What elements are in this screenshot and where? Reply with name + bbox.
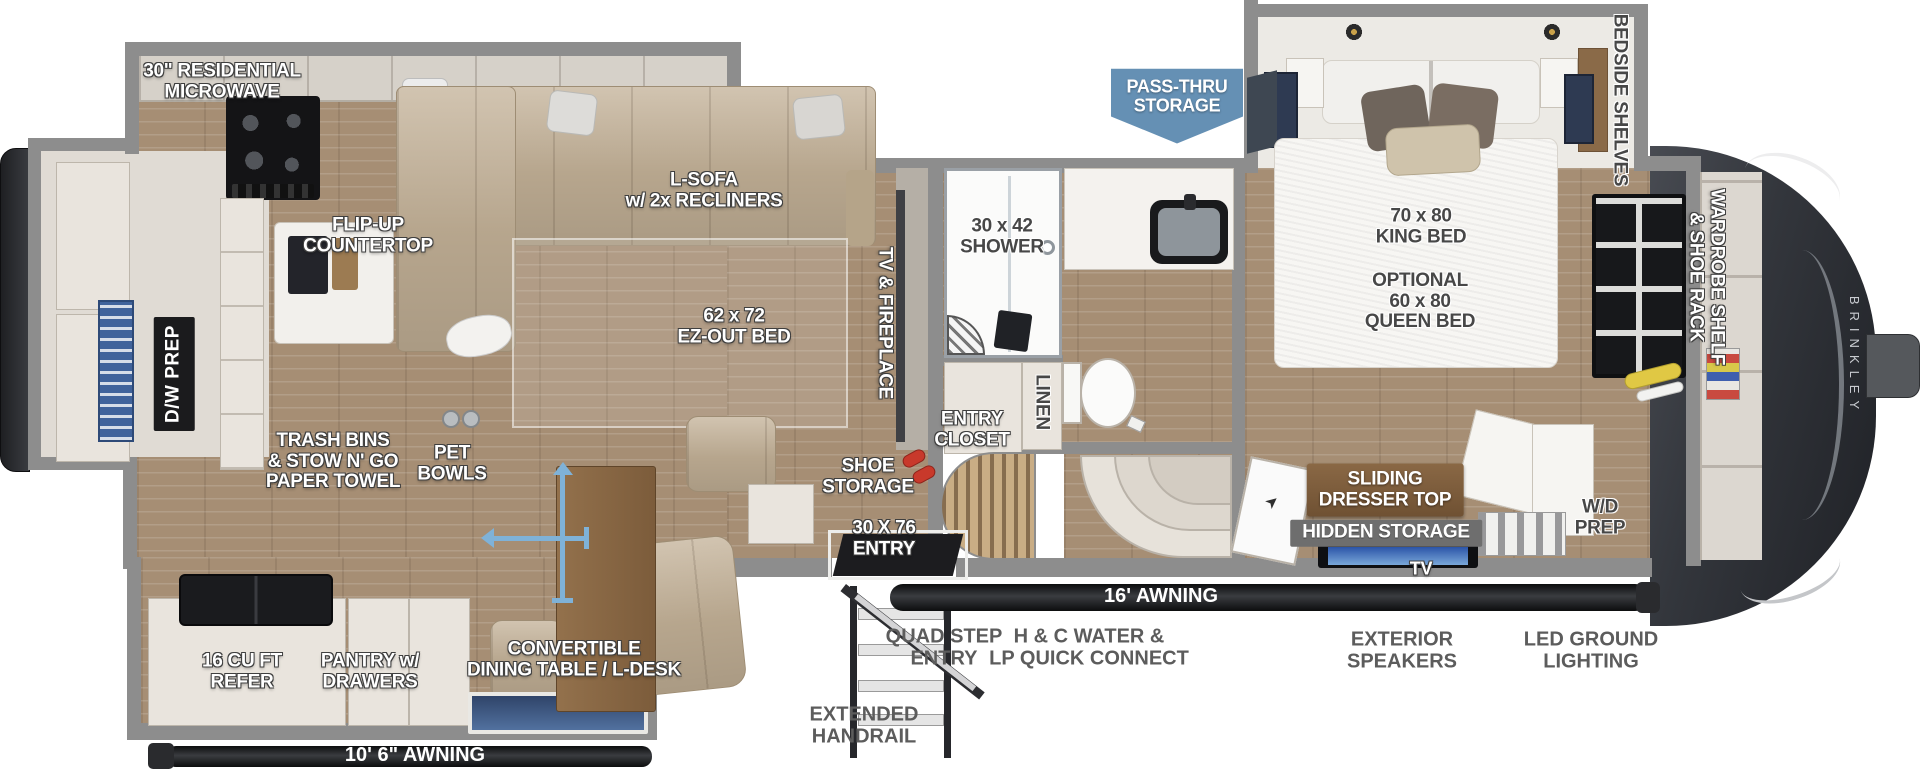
trash-bins-label: TRASH BINS & STOW N' GO PAPER TOWEL (266, 431, 400, 493)
wd-prep-label: W/D PREP (1575, 497, 1626, 538)
front-cap-curve (1760, 250, 1844, 520)
entry-closet-label: ENTRY CLOSET (934, 409, 1009, 450)
slide-end-window (1564, 74, 1594, 144)
hc-water-label: H & C WATER & LP QUICK CONNECT (989, 626, 1189, 669)
bed-slide-top-wall (1256, 4, 1648, 17)
hidden-storage-sign: HIDDEN STORAGE (1290, 520, 1482, 547)
tv-label: TV (1410, 559, 1432, 578)
bath-sink-basin (1158, 208, 1220, 256)
floor-plan-canvas: ➤ 30" RESIDENTIAL MICROWAVE FLIP-UP COUN… (0, 0, 1920, 771)
pantry-label: PANTRY w/ DRAWERS (321, 651, 419, 692)
flip-up-countertop-label: FLIP-UP COUNTERTOP (303, 215, 433, 256)
pass-thru-door (1247, 70, 1277, 153)
table-move-arrow-cap-bottom (552, 598, 573, 603)
sofa-pillow (546, 89, 599, 137)
shower-control (994, 310, 1033, 352)
camp-side-awning-end-cap (148, 743, 174, 769)
bedside-shelves-label: BEDSIDE SHELVES (1609, 14, 1630, 187)
door-side-awning-label: 16' AWNING (1104, 586, 1218, 608)
stove-grate (232, 184, 314, 198)
bedroom-window (1592, 194, 1686, 378)
pass-thru-storage-badge: PASS-THRU STORAGE (1111, 69, 1243, 144)
recliner-chair (686, 416, 776, 492)
dinette-label: CONVERTIBLE DINING TABLE / L-DESK (467, 639, 681, 680)
bed-slide-right-wall (1634, 4, 1648, 160)
pet-bowls-label: PET BOWLS (417, 443, 486, 484)
toilet-tank (1062, 362, 1082, 424)
ez-out-bed-label: 62 x 72 EZ-OUT BED (677, 306, 790, 347)
table-move-arrow-cap-right (584, 527, 589, 549)
extended-handrail-label: EXTENDED HANDRAIL (810, 704, 919, 747)
table-move-arrow-up (553, 462, 573, 475)
brand-wordmark: BRINKLEY (1847, 296, 1861, 416)
wardrobe-shelf-label: WARDROBE SHELF & SHOE RACK (1685, 189, 1726, 365)
rear-cabinet-upper (56, 162, 130, 310)
tv-fireplace-label: TV & FIREPLACE (874, 247, 895, 399)
refer-label: 16 CU FT REFER (202, 651, 282, 692)
rear-top-wall (30, 138, 130, 151)
shoe-storage-bench (748, 484, 814, 544)
hitch-pin-box (1866, 334, 1920, 398)
pet-bowl-icon (442, 410, 460, 428)
entry-step (858, 680, 944, 692)
bed-pillow-accent (1385, 124, 1481, 177)
bedroom-tv-screen (1328, 547, 1468, 565)
bottom-wall-right-of-door (956, 558, 1652, 577)
rear-left-wall (28, 138, 41, 470)
tv-panel (896, 190, 905, 442)
dw-prep-sign: D/W PREP (154, 317, 195, 431)
table-move-arrow-left (481, 528, 494, 548)
camp-side-awning-label: 10' 6" AWNING (345, 745, 485, 767)
door-side-awning-end-cap (1636, 582, 1660, 613)
dresser-slats (1478, 512, 1566, 556)
entry-door-label: 30 X 76 ENTRY (852, 518, 915, 559)
quad-step-entry-label: QUAD STEP ENTRY (886, 626, 1003, 669)
queen-bed-label: OPTIONAL 60 x 80 QUEEN BED (1365, 271, 1475, 333)
refrigerator (179, 574, 333, 626)
exterior-speakers-label: EXTERIOR SPEAKERS (1347, 629, 1457, 672)
led-ground-lighting-label: LED GROUND LIGHTING (1524, 629, 1658, 672)
sofa-armrest (846, 170, 874, 246)
sofa-pillow (792, 94, 846, 141)
l-sofa-label: L-SOFA w/ 2x RECLINERS (625, 170, 782, 211)
rear-cap (0, 148, 30, 472)
slide-step-wall (123, 457, 137, 569)
kitchen-drawer-stack (220, 198, 264, 470)
toilet-bowl (1080, 358, 1136, 428)
ceiling-light-icon (1542, 22, 1562, 42)
door-side-awning-bar (890, 584, 1648, 611)
ceiling-light-icon (1344, 22, 1364, 42)
king-bed-label: 70 x 80 KING BED (1376, 206, 1467, 247)
kitchen-slide-top-wall (125, 42, 740, 56)
dinette-slide-left-wall (127, 557, 141, 739)
microwave-label: 30" RESIDENTIAL MICROWAVE (143, 61, 301, 102)
linen-label: LINEN (1031, 374, 1052, 430)
table-move-arrows-icon (494, 536, 586, 541)
shower-label: 30 x 42 SHOWER (960, 216, 1044, 257)
shoe-storage-label: SHOE STORAGE (822, 456, 914, 497)
pet-bowl-icon (462, 410, 480, 428)
bath-faucet (1184, 194, 1196, 210)
sliding-dresser-top-sign: SLIDING DRESSER TOP (1307, 463, 1464, 516)
dishwasher (98, 300, 134, 442)
